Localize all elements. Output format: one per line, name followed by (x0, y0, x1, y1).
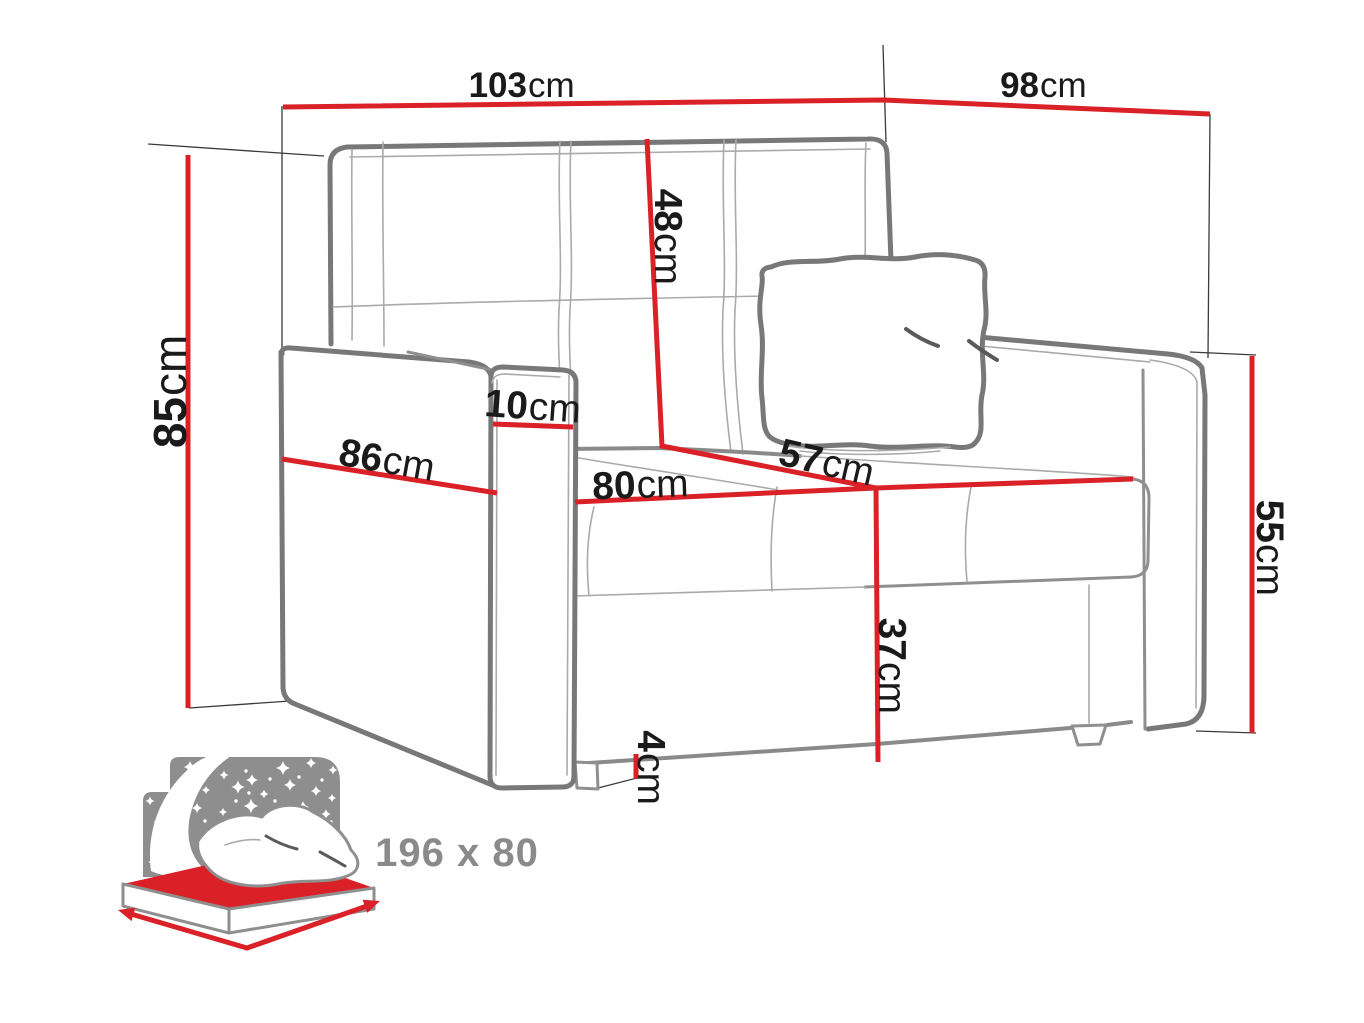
left-foot (575, 762, 598, 789)
star-dot-icon (297, 775, 300, 778)
seat-width-value: 80 (591, 464, 636, 508)
star-dot-icon (247, 791, 250, 794)
dimension-labels: 103 cm 98 cm 85 cm 48 cm 10 cm 86 cm 80 … (144, 66, 1291, 805)
right-armrest (1143, 360, 1197, 729)
witness-armrest-top (1190, 352, 1256, 355)
seat-depth-unit: cm (818, 441, 878, 495)
pillow-outline (760, 255, 986, 448)
seat-cushion-right-edge (865, 479, 1149, 587)
seat-width-unit: cm (636, 462, 689, 507)
dimension-label-armrest-depth: 86 cm (336, 431, 438, 490)
witness-right-depth (1208, 114, 1210, 358)
star-dot-icon (320, 778, 323, 781)
cushion-bottom-seam (573, 587, 865, 596)
overall-depth-value: 98 (1000, 66, 1039, 105)
diagram-canvas: 103 cm 98 cm 85 cm 48 cm 10 cm 86 cm 80 … (0, 0, 1364, 1023)
sleeping-area-icon: 196 x 80 (118, 754, 539, 948)
dimension-label-seat-width: 80 cm (591, 462, 689, 508)
overall-width-unit: cm (528, 66, 575, 105)
seat-height-unit: cm (870, 662, 913, 714)
overall-height-unit: cm (144, 335, 196, 396)
dimension-label-leg-height: 4 cm (629, 730, 672, 805)
star-dot-icon (244, 769, 247, 772)
dimension-label-overall-width: 103 cm (469, 66, 575, 105)
dimension-label-overall-height: 85 cm (144, 335, 196, 449)
star-dot-icon (234, 799, 237, 802)
leg-height-value: 4 (629, 730, 672, 752)
dimension-label-armrest-width: 10 cm (483, 382, 582, 432)
armrest-height-value: 55 (1248, 500, 1291, 543)
seat-height-value: 37 (870, 618, 913, 661)
backrest-top-seam (350, 149, 870, 157)
arrow-head-left-icon (118, 908, 135, 921)
armrest-depth-value: 86 (336, 431, 386, 481)
star-dot-icon (180, 805, 183, 808)
witness-height-bottom (189, 701, 290, 708)
star-dot-icon (213, 763, 216, 766)
backrest-height-value: 48 (646, 189, 689, 232)
dimension-label-backrest-height: 48 cm (646, 189, 689, 285)
right-foot (1072, 725, 1106, 745)
left-armrest-outer-edge (281, 352, 497, 787)
witness-armrest-bottom (1196, 731, 1256, 733)
dimension-label-overall-depth: 98 cm (1000, 66, 1087, 105)
dimension-line-seat-depth (876, 479, 1133, 488)
overall-width-value: 103 (469, 66, 527, 105)
star-dot-icon (164, 810, 167, 813)
witness-lines (148, 45, 1256, 788)
dimension-label-seat-height: 37 cm (870, 618, 913, 714)
star-dot-icon (273, 799, 276, 802)
armrest-depth-unit: cm (379, 439, 438, 490)
star-dot-icon (203, 819, 206, 822)
armrest-width-unit: cm (527, 385, 582, 432)
backrest-height-unit: cm (646, 233, 689, 285)
dimension-label-armrest-height: 55 cm (1248, 500, 1291, 596)
witness-height-top (148, 144, 324, 156)
sofa-dimension-diagram: 103 cm 98 cm 85 cm 48 cm 10 cm 86 cm 80 … (0, 0, 1364, 1023)
armrest-height-unit: cm (1248, 544, 1291, 596)
star-dot-icon (156, 835, 159, 838)
armrest-width-value: 10 (483, 382, 529, 428)
sleeping-area-size-label: 196 x 80 (375, 831, 539, 875)
leg-height-unit: cm (629, 753, 672, 805)
star-dot-icon (268, 777, 271, 780)
overall-height-value: 85 (144, 397, 196, 448)
pillow (760, 255, 997, 455)
back-rail (967, 336, 1205, 729)
witness-mid-width (883, 45, 886, 142)
overall-depth-unit: cm (1040, 66, 1087, 105)
